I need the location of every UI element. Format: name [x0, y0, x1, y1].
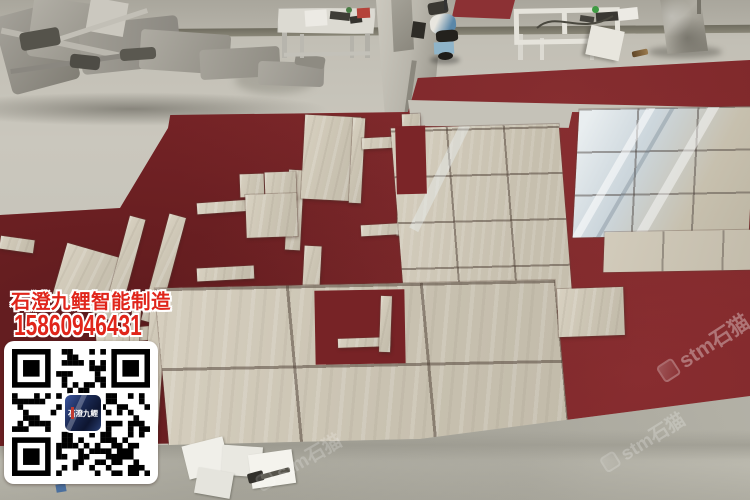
carpet-cutout — [314, 289, 405, 365]
cable-on-floor — [535, 10, 615, 34]
pile-shadow-gap — [69, 53, 100, 70]
scooter — [410, 0, 472, 64]
pile-shadow-gap — [120, 47, 157, 61]
paper-on-table — [304, 9, 327, 26]
black-box — [411, 21, 426, 39]
tile-grid-glossy — [573, 106, 750, 237]
phone-number-digits: 15860946431 — [14, 312, 142, 341]
marble-tile — [557, 287, 625, 337]
marble-tile — [245, 193, 297, 238]
scooter-seat — [436, 29, 459, 43]
qr-logo-red-bar — [71, 407, 74, 419]
paper-on-table — [617, 7, 638, 21]
table-shelf — [284, 51, 370, 57]
carpet-cutout — [395, 126, 427, 195]
scooter-mirror — [444, 0, 447, 10]
blue-object — [55, 483, 66, 493]
phone-number-text: 15860946431 — [14, 312, 191, 341]
work-table-left — [277, 5, 377, 62]
marble-strip — [379, 296, 392, 352]
red-object — [357, 8, 371, 19]
tool-on-floor — [632, 48, 649, 57]
qr-center-logo: 石澄九鲤 — [63, 393, 103, 433]
pole — [697, 0, 701, 14]
green-object — [346, 7, 352, 13]
window-reflection-streak — [634, 106, 720, 237]
tile-grid-glossy-lower-row — [603, 230, 750, 273]
factory-floor-photo: stm石猫 stm石猫 stm石猫 石澄九鲤智能制造 15860946431 石… — [0, 0, 750, 500]
qr-code: 石澄九鲤 — [4, 341, 158, 484]
